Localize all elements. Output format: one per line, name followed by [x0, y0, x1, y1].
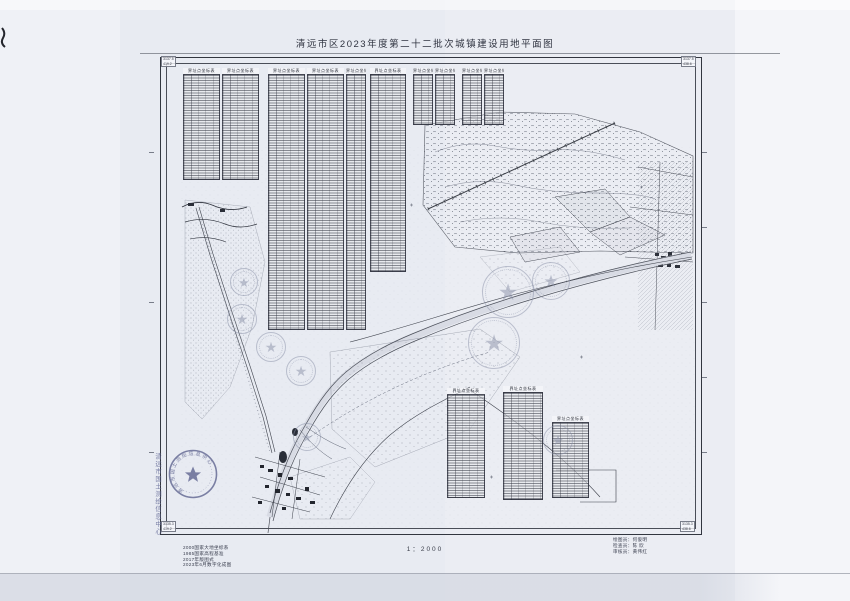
note-line: 2023年6月数字化成图: [183, 562, 303, 568]
coordinate-table-grid: [268, 74, 305, 330]
corner-grid-value: 438.6: [682, 527, 693, 532]
corner-grid-value: 419.2: [163, 527, 174, 532]
scanned-map-page: 清远市区2023年度第二十二批次城镇建设用地平面图: [0, 0, 850, 601]
coordinate-table: 界址点坐标表: [346, 68, 366, 330]
survey-seal: ★: [532, 262, 570, 300]
coordinate-table-grid: [307, 74, 344, 330]
survey-seal: ★: [286, 356, 316, 386]
coordinate-table-grid: [346, 74, 366, 330]
survey-seal: ★: [543, 425, 573, 455]
coordinate-table: 界址点坐标表: [307, 68, 344, 330]
coordinate-table: 界址点坐标表: [462, 68, 482, 125]
official-seal: 清远市国土测绘信息中心: [168, 449, 218, 499]
seal-star-icon: ★: [543, 273, 558, 290]
coordinate-table: 界址点坐标表: [447, 388, 485, 498]
coordinate-table: 界址点坐标表: [484, 68, 504, 125]
scale-label: 1：2000: [407, 543, 444, 553]
coordinate-table-grid: [447, 394, 485, 498]
corner-grid-label: 3137.5438.6: [681, 56, 696, 67]
survey-seal: ★: [293, 423, 321, 451]
coordinate-table: 界址点坐标表: [435, 68, 455, 125]
corner-grid-label: 3135.3438.6: [680, 521, 695, 532]
corner-grid-label: 3135.3419.2: [161, 521, 176, 532]
coordinate-table-grid: [413, 74, 433, 125]
seal-star-icon: ★: [236, 312, 249, 326]
grid-tick: [702, 452, 707, 453]
grid-tick: [702, 227, 707, 228]
coordinate-table-grid: [370, 74, 406, 272]
seal-star-icon: ★: [301, 431, 313, 444]
grid-tick: [149, 152, 154, 153]
survey-seal: ★: [482, 266, 534, 318]
corner-grid-label: 3137.5419.2: [161, 56, 176, 67]
seal-star-icon: ★: [295, 364, 308, 378]
coordinate-table: 界址点坐标表: [503, 386, 543, 500]
survey-seal: ★: [230, 268, 258, 296]
coordinate-table: 界址点坐标表: [183, 68, 220, 180]
corner-grid-value: 3137.5: [683, 57, 694, 62]
seal-star-icon: ★: [484, 332, 505, 355]
coordinate-table: 界址点坐标表: [222, 68, 259, 180]
seal-star-icon: ★: [552, 433, 565, 447]
grid-tick: [702, 302, 707, 303]
seal-star-icon: ★: [498, 281, 519, 304]
corner-grid-value: 438.6: [683, 62, 694, 67]
seal-star-icon: ★: [265, 340, 278, 354]
survey-seal: ★: [256, 332, 286, 362]
grid-tick: [702, 152, 707, 153]
coordinate-table: 界址点坐标表: [370, 68, 406, 272]
survey-seal: ★: [227, 304, 257, 334]
corner-grid-value: 3137.5: [163, 57, 174, 62]
grid-tick: [702, 377, 707, 378]
side-agency-text: 清远市国土测绘信息中心: [153, 453, 162, 539]
coordinate-table: 界址点坐标表: [268, 68, 305, 330]
map-credits: 绘图员：何俊明检查员：陈 欣审核员：黄伟红: [613, 537, 723, 556]
coordinate-table-grid: [222, 74, 259, 180]
generated-overlays: 界址点坐标表界址点坐标表界址点坐标表界址点坐标表界址点坐标表界址点坐标表界址点坐…: [0, 0, 850, 601]
coordinate-table-grid: [484, 74, 504, 125]
coordinate-table-grid: [503, 392, 543, 500]
seal-star-icon: [185, 467, 201, 482]
coordinate-table: 界址点坐标表: [413, 68, 433, 125]
coordinate-table-grid: [462, 74, 482, 125]
coordinate-table-grid: [435, 74, 455, 125]
corner-grid-value: 3135.3: [163, 522, 174, 527]
corner-grid-value: 3135.3: [682, 522, 693, 527]
survey-seal: ★: [468, 317, 520, 369]
seal-star-icon: ★: [238, 276, 250, 289]
grid-tick: [149, 302, 154, 303]
corner-grid-value: 419.2: [163, 62, 174, 67]
coordinate-table-grid: [183, 74, 220, 180]
credit-line: 审核员：黄伟红: [613, 549, 723, 555]
map-notes: 2000国家大地坐标系1985国家高程基准2017年版图式2023年6月数字化成…: [183, 545, 303, 568]
